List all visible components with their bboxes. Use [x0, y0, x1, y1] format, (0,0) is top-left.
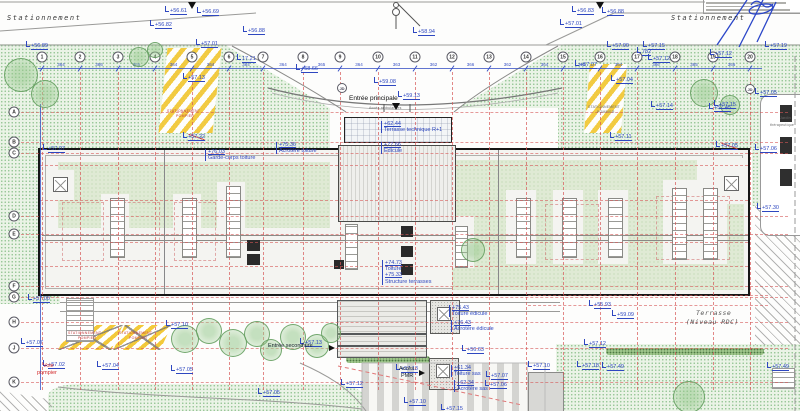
tree-canopy	[461, 238, 485, 262]
text-label: Terrasse	[696, 309, 731, 317]
text-label: PMR	[401, 373, 413, 379]
tree-canopy	[305, 334, 329, 358]
grid-column-label: 9	[339, 54, 342, 60]
text-label: thérapeutique	[770, 123, 794, 127]
spot-elevation-value: +56.88	[607, 9, 624, 16]
spot-elevation-value: +57.00	[33, 296, 50, 303]
level-tick-icon	[765, 41, 769, 47]
grid-column-bubble: 18	[670, 52, 681, 63]
level-tick-icon	[258, 388, 262, 394]
callout-line: +62.44	[384, 121, 442, 127]
grid-row-bubble: D	[9, 211, 20, 222]
grid-line-vertical	[675, 72, 676, 390]
spot-elevation: +56.88	[602, 7, 624, 15]
title-block-text-line	[706, 6, 772, 8]
garden-bench	[780, 137, 792, 154]
level-tick-icon	[396, 364, 400, 370]
grid-column-bubble: 7	[258, 52, 269, 63]
spot-elevation-value: +57.10	[171, 322, 188, 329]
callout-line: +76.43	[454, 320, 494, 326]
text-label: Entrée secondaire	[268, 343, 313, 349]
spot-elevation-value: +57.18	[582, 363, 599, 370]
dimension-tick	[40, 65, 45, 71]
grid-row-label: D	[12, 213, 16, 219]
column-dimension: 365	[133, 62, 141, 67]
elevation-callout: +77.66Édicule	[381, 142, 402, 154]
spot-elevation: +57.13	[300, 338, 322, 346]
grid-row-label: G	[12, 294, 16, 300]
grid-column-bubble: 11	[410, 52, 421, 63]
walkway-curves	[58, 363, 545, 411]
tree-canopy	[147, 42, 163, 58]
grid-row-label: E	[12, 231, 15, 237]
callout-line: Acrotère édicule	[454, 326, 494, 332]
dimension-tick	[487, 65, 492, 71]
grid-line-horizontal	[16, 234, 788, 235]
level-tick-icon	[602, 7, 606, 13]
spot-elevation: +57.05	[716, 141, 738, 149]
garden-bench	[780, 105, 792, 122]
title-block-text-line	[706, 9, 790, 11]
level-tick-icon	[398, 91, 402, 97]
dimension-tick	[748, 65, 753, 71]
terrain-layer	[0, 0, 800, 411]
spot-elevation: +57.19	[765, 41, 787, 49]
grid-line-extra	[528, 295, 768, 296]
level-tick-icon	[341, 379, 345, 385]
fire-parking-hatch-1	[58, 325, 123, 350]
entrance-plaza	[224, 44, 564, 114]
roof-well	[46, 170, 74, 200]
access-marker-icon	[188, 2, 196, 9]
spot-elevation-value: +57.07	[580, 62, 597, 69]
spot-elevation: +59.09	[612, 310, 634, 318]
grid-row-bubble: J	[9, 343, 20, 354]
dim-tick-layer	[0, 0, 800, 411]
spot-elevation: +56.89	[26, 41, 48, 49]
grid-line-vertical	[713, 72, 714, 390]
spot-elevation-value: +57.02	[48, 362, 65, 369]
spot-elevation: +57.12	[710, 49, 732, 57]
spot-elevation-value: +59.08	[379, 79, 396, 86]
grid-line-vertical	[340, 72, 341, 390]
dimension-tick	[450, 65, 455, 71]
spot-elevation-value: +57.45	[714, 105, 731, 112]
level-tick-icon	[183, 132, 187, 138]
text-label: POMPIER	[78, 336, 96, 340]
grid-row-bubble: H	[9, 317, 20, 328]
text-label: Stationnement	[7, 14, 81, 22]
level-tick-icon	[589, 300, 593, 306]
dimension-layer	[0, 0, 800, 411]
level-tick-icon	[584, 339, 588, 345]
spot-elevation-value: +56.88	[248, 28, 265, 35]
column-dimension: 366	[467, 62, 475, 67]
ramp-slope-line	[338, 366, 522, 405]
fire-parking-hatch-2	[113, 325, 172, 350]
level-tick-icon	[97, 361, 101, 367]
dimension-tick	[561, 65, 566, 71]
spot-elevation: +57.10	[528, 361, 550, 369]
spot-elevation-value: +57.10	[409, 399, 426, 406]
grid-column-label: 10	[375, 54, 381, 60]
level-tick-icon	[26, 41, 30, 47]
roof-dashed-zone	[118, 202, 160, 261]
elevation-callout: +61.34Toiture sas	[451, 365, 481, 377]
grid-column-bubble: 5	[187, 52, 198, 63]
level-tick-icon	[165, 6, 169, 12]
grid-column-bubble: 9	[335, 52, 346, 63]
red-grid-horizontal-layer	[0, 0, 800, 411]
spot-elevation: +57.49	[602, 362, 624, 370]
grid-column-bubble: 19	[708, 52, 719, 63]
dimension-tick	[153, 65, 158, 71]
level-tick-icon	[404, 397, 408, 403]
column-dimension: 366	[95, 62, 103, 67]
callout-line: +75.36	[279, 142, 317, 148]
south-terrace-line	[60, 311, 560, 312]
terrace-structure-band	[338, 333, 426, 335]
callout-line: +74.73	[385, 260, 431, 266]
spot-elevation-value: +57.15	[446, 406, 463, 411]
dimension-tick	[227, 65, 232, 71]
grid-line-vertical	[415, 72, 416, 390]
tree-canopy	[690, 79, 718, 107]
column-dimension: 363	[393, 62, 401, 67]
spot-elevation-value: +57.13	[188, 75, 205, 82]
level-tick-icon	[486, 371, 490, 377]
elevation-callout: +75.36Acrotère toiture	[276, 142, 317, 154]
spot-elevation-value: +57.11	[615, 134, 632, 141]
level-tick-icon	[560, 19, 564, 25]
access-marker-icon	[419, 370, 425, 376]
grid-line-horizontal	[16, 216, 788, 217]
spot-elevation-layer: +56.61+56.69+56.82+56.88+56.89+57.01+56.…	[0, 0, 800, 411]
rooftop-unit	[672, 188, 687, 260]
spot-elevation: +57.30	[757, 203, 779, 211]
spot-elevation-value: +56.83	[577, 8, 594, 15]
dimension-tick	[413, 65, 418, 71]
spot-elevation-value: +57.07	[491, 373, 508, 380]
column-dim-line	[38, 68, 762, 69]
spot-elevation: +57.45	[709, 103, 731, 111]
elevation-callout: +62.44Terrasse technique R+1	[381, 121, 442, 133]
elevation-callout: +76.03Garde-corps toiture	[205, 149, 255, 161]
grid-column-bubble: 8	[298, 52, 309, 63]
spot-elevation-value: +57.22	[188, 134, 205, 141]
grid-column-label: 14	[523, 54, 529, 60]
spot-elevation: +57.10	[404, 397, 426, 405]
spot-elevation: +57.22	[183, 132, 205, 140]
grid-column-bubble: 14	[521, 52, 532, 63]
spot-elevation: +56.69	[197, 7, 219, 15]
south-terrace-line	[60, 302, 560, 303]
text-label: (Niveau RDC)	[686, 318, 739, 326]
paving-block	[528, 372, 564, 411]
vegetation-top-band	[0, 44, 800, 150]
grid-row-label: H	[12, 319, 16, 325]
spot-elevation: +57.11	[610, 132, 632, 140]
level-tick-icon	[716, 141, 720, 147]
level-tick-icon	[755, 88, 759, 94]
grid-row-label: F	[12, 283, 15, 289]
roof-corridor-line	[42, 235, 748, 236]
grid-line-vertical	[155, 72, 156, 390]
spot-elevation-value: +57.19	[770, 43, 787, 50]
spot-elevation: +57.00	[28, 294, 50, 302]
spot-elevation-value: +57.30	[762, 205, 779, 212]
grid-line-extra	[528, 305, 768, 306]
spot-elevation-value: +57.06	[760, 146, 777, 153]
grid-line-horizontal	[16, 382, 788, 383]
grid-column-bubble: 12	[447, 52, 458, 63]
grid-column-label: 4	[154, 54, 157, 60]
level-tick-icon	[575, 60, 579, 66]
text-label: POMPIER	[597, 110, 615, 114]
tree-canopy	[720, 95, 740, 115]
grid-row-bubble: B	[9, 137, 20, 148]
text-label: Accès ambulances	[369, 106, 402, 110]
spot-elevation-value: +57.05	[760, 90, 777, 97]
spot-elevation-value: +56.61	[170, 8, 187, 15]
tree-canopy	[321, 323, 341, 343]
access-marker-icon	[596, 2, 604, 9]
grid-column-bubble: 3	[113, 52, 124, 63]
level-tick-icon	[243, 26, 247, 32]
callout-line: +76.03	[208, 149, 255, 155]
text-label: Jardin	[780, 116, 791, 120]
grid-column-label: 12	[449, 54, 455, 60]
survey-post-icon	[393, 3, 421, 30]
vegetation-left-column	[0, 148, 60, 304]
elevation-callout: +74.73Toiture+75.33Structure terrasses	[382, 260, 431, 285]
red-grid-vertical-layer	[0, 0, 800, 411]
column-dimension: 365	[578, 62, 586, 67]
level-tick-icon	[183, 73, 187, 79]
callout-line: +77.66	[384, 142, 402, 148]
grid-column-label: 17	[634, 54, 640, 60]
grid-line-horizontal	[16, 322, 788, 323]
grid-column-label: 18	[672, 54, 678, 60]
entrance-sas	[429, 358, 459, 390]
site-plan-canvas: 3643663653643643643643653643633623663623…	[0, 0, 800, 411]
grid-column-label: 6	[228, 54, 231, 60]
text-label: STATIONNEMENT	[119, 331, 152, 335]
text-label: STATIONNEMENT	[167, 109, 200, 113]
entrance-forecourt	[330, 108, 558, 150]
column-dimension: 364	[541, 62, 549, 67]
dimension-tick	[78, 65, 83, 71]
level-tick-icon	[648, 54, 652, 60]
spot-elevation-value: +57.15	[719, 102, 736, 109]
spot-elevation-value: +59.13	[403, 93, 420, 100]
grid-line-extra	[40, 165, 748, 166]
callout-line: Toiture édicule	[452, 311, 487, 317]
terrace-structure	[337, 300, 427, 358]
roof-well	[217, 182, 245, 232]
rooftop-unit	[226, 186, 241, 258]
level-tick-icon	[710, 49, 714, 55]
vegetation-terrace-garden	[556, 344, 800, 411]
text-label: pompier	[37, 370, 57, 376]
spot-elevation-value: +57.15	[648, 43, 665, 50]
grid-line-vertical	[80, 72, 81, 390]
spot-elevation: +57.14	[651, 101, 673, 109]
grid-line-horizontal	[16, 142, 788, 143]
spot-elevation: +57.12	[341, 379, 363, 387]
grid-line-extra	[40, 242, 748, 243]
grid-column-bubble: 20	[745, 52, 756, 63]
callout-line: +62.34	[457, 380, 488, 386]
rooftop-unit	[608, 198, 623, 258]
grid-row-label: J	[13, 345, 16, 351]
column-dims-layer: 3643663653643643643643653643633623663623…	[0, 0, 800, 411]
rooftop-unit	[562, 198, 577, 258]
green-roof-right	[452, 160, 744, 290]
grid-row-label: K	[12, 379, 16, 385]
spot-elevation-value: +57.13	[401, 366, 418, 373]
therapeutic-garden	[760, 94, 800, 236]
grid-row-label: C	[12, 150, 16, 156]
vegetation-right-column	[752, 148, 800, 206]
roof-well	[101, 194, 129, 234]
spot-elevation-value: +57.12	[653, 56, 670, 63]
grid-line-extra	[40, 200, 748, 201]
tree-canopy	[31, 80, 59, 108]
grid-line-horizontal	[16, 112, 788, 113]
elevation-callout: +75.43Toiture édicule	[449, 305, 487, 317]
spot-elevation: +57.05	[171, 365, 193, 373]
spot-elevation: +57.07	[575, 60, 597, 68]
spot-elevation-value: +57.14	[656, 103, 673, 110]
grid-row-bubble: E	[9, 229, 20, 240]
roof-well	[173, 194, 201, 234]
grid-row-bubble: C	[9, 148, 20, 159]
spot-elevation: +57.05	[258, 388, 280, 396]
spot-elevation: +57.10	[166, 320, 188, 328]
grid-line-vertical	[42, 72, 43, 390]
roof-well	[663, 180, 695, 264]
spot-elevation-value: +56.63	[467, 347, 484, 354]
grid-row-label: B	[12, 139, 16, 145]
callout-layer: +76.03Garde-corps toiture+75.36Acrotère …	[0, 0, 800, 411]
grid-line-vertical	[600, 72, 601, 390]
level-tick-icon	[43, 360, 47, 366]
grid-column-bubble: 6	[224, 52, 235, 63]
rooftop-unit	[455, 226, 468, 268]
building-roof	[38, 148, 750, 296]
level-tick-icon	[612, 310, 616, 316]
text-label: POMPIER	[129, 336, 147, 340]
skylight-icon	[724, 176, 739, 191]
grid-line-horizontal	[16, 348, 788, 349]
grid-column-label: 11	[412, 54, 417, 60]
grid-column-label: 2	[79, 54, 82, 60]
spot-elevation-value: +59.09	[617, 312, 634, 319]
roof-corridor-line	[42, 240, 748, 241]
column-dimension: 362	[504, 62, 512, 67]
roof-acrotere-line	[45, 155, 743, 289]
grid-row-label: A	[12, 109, 16, 115]
grid-column-bubble: 4	[150, 52, 161, 63]
level-tick-icon	[28, 294, 32, 300]
spot-elevation: +57.15	[714, 100, 736, 108]
expansion-joint-label: JD	[747, 87, 752, 92]
grid-line-horizontal	[16, 297, 788, 298]
level-tick-icon	[166, 320, 170, 326]
skylight-icon	[53, 177, 68, 192]
terrace-structure-band	[338, 345, 426, 347]
grid-column-bubble: 13	[484, 52, 495, 63]
title-block-text-line	[706, 2, 786, 4]
spot-elevation: +59.13	[398, 91, 420, 99]
rooftop-unit	[345, 224, 358, 270]
road-lines	[0, 2, 800, 45]
grid-line-vertical	[637, 72, 638, 390]
grid-row-bubble: G	[9, 292, 20, 303]
spot-elevation: +57.00	[607, 41, 629, 49]
spot-elevation-value: +57.10	[533, 363, 550, 370]
building-layer	[0, 0, 800, 411]
grid-line-vertical	[526, 72, 527, 390]
rooftop-equipment-block	[247, 240, 260, 251]
column-bubble-layer: 1234567891011121314151617181920	[0, 0, 800, 411]
tree-layer	[0, 0, 800, 411]
text-label: Voie	[43, 363, 54, 369]
text-label: STATIONNEMENT	[588, 105, 620, 109]
level-tick-icon	[43, 144, 47, 150]
fire-lane-hatch-topleft	[159, 48, 222, 133]
grid-line-vertical	[263, 72, 264, 390]
spot-elevation: +57.15	[643, 41, 665, 49]
spot-elevation: +57.13	[183, 73, 205, 81]
grid-line-vertical	[118, 72, 119, 390]
linework-svg	[0, 0, 800, 411]
spot-elevation: +59.08	[374, 77, 396, 85]
grid-line-horizontal	[16, 286, 788, 287]
grid-column-bubble: 15	[558, 52, 569, 63]
level-tick-icon	[485, 380, 489, 386]
roof-well	[695, 180, 727, 264]
spot-elevation-value: +58.94	[418, 29, 435, 36]
rooftop-equipment-block	[334, 260, 344, 269]
grid-column-bubble: 16	[595, 52, 606, 63]
rooftop-equipment-block	[401, 226, 413, 237]
spot-elevation: +56.63	[462, 345, 484, 353]
spot-elevation-value: +57.07	[26, 340, 43, 347]
edicule-roof	[338, 145, 456, 222]
dimension-tick	[711, 65, 716, 71]
grid-column-label: 16	[597, 54, 603, 60]
red-grid-extra-layer	[0, 0, 800, 411]
text-label-layer: StationnementStationnementEntrée princip…	[0, 0, 800, 411]
level-tick-icon	[607, 41, 611, 47]
level-tick-icon	[755, 144, 759, 150]
level-tick-icon	[196, 39, 200, 45]
callout-line: Édicule	[384, 148, 402, 154]
elevation-callout: +76.43Acrotère édicule	[451, 320, 494, 332]
level-tick-icon	[757, 203, 761, 209]
spot-elevation: +57.01	[196, 39, 218, 47]
grid-line-vertical	[303, 72, 304, 390]
callout-line: Garde-corps toiture	[208, 155, 255, 161]
garden-bench	[780, 169, 792, 186]
level-tick-icon	[572, 6, 576, 12]
column-dimension: 364	[279, 62, 287, 67]
spot-elevation: +57.02	[43, 360, 65, 368]
neighbor-hatch-corner	[0, 386, 52, 411]
dimension-tick	[301, 65, 306, 71]
